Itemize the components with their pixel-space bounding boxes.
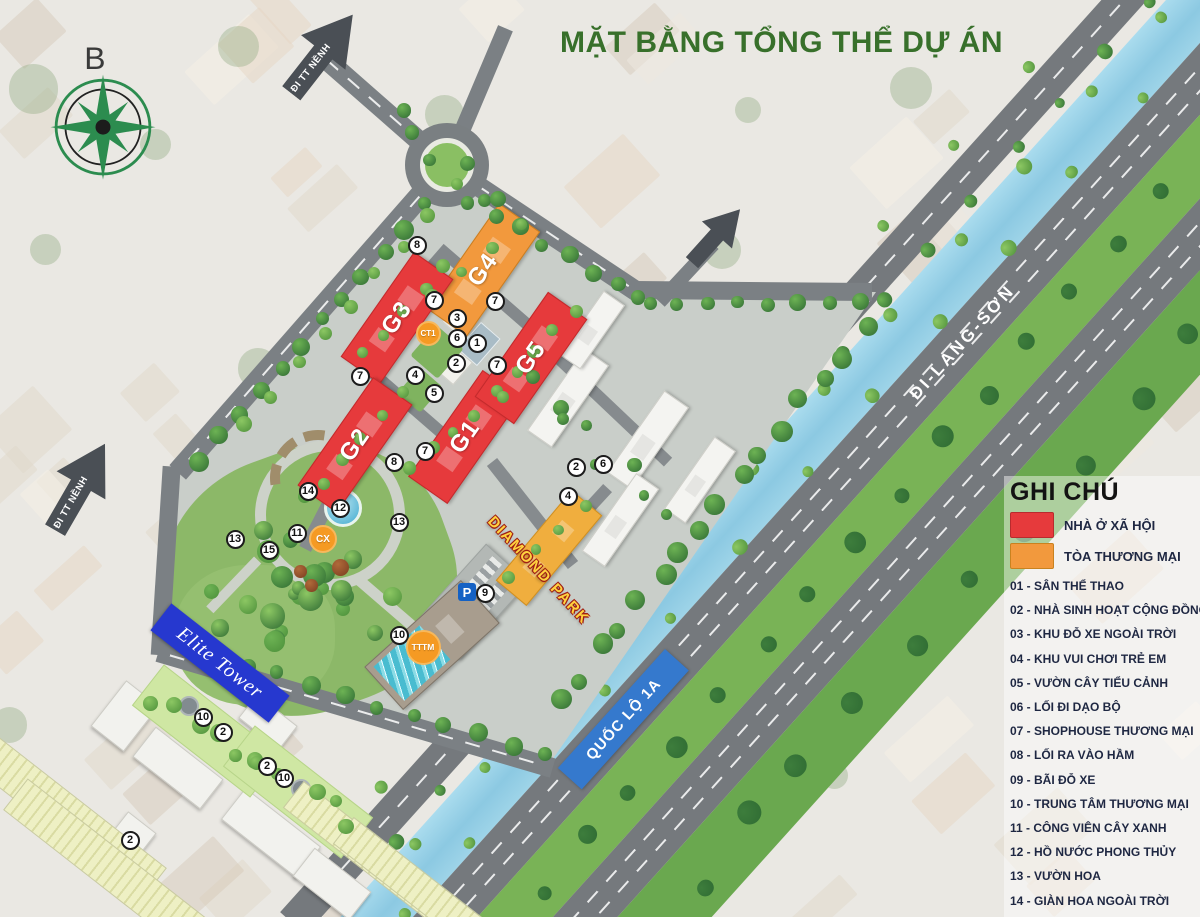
map-marker-7: 7: [416, 442, 435, 461]
legend-item-11: 11 - CÔNG VIÊN CÂY XANH: [1010, 816, 1200, 840]
tree: [581, 420, 592, 431]
map-marker-14: 14: [299, 482, 318, 501]
tree: [397, 103, 411, 117]
page-title: MẶT BẰNG TỔNG THỂ DỰ ÁN: [560, 26, 1003, 60]
aerial-tree-cluster: [0, 707, 27, 743]
legend-swatch-row: TÒA THƯƠNG MẠI: [1010, 543, 1200, 569]
tree: [644, 297, 657, 310]
tree: [585, 265, 602, 282]
tree: [294, 565, 306, 577]
tree: [189, 452, 209, 472]
tree: [817, 370, 834, 387]
tree: [309, 784, 326, 801]
tree: [832, 349, 852, 369]
map-marker-1: 1: [468, 334, 487, 353]
tree: [331, 580, 352, 601]
tree: [502, 571, 515, 584]
tree: [538, 747, 552, 761]
aerial-house: [563, 133, 660, 228]
map-marker-7: 7: [486, 292, 505, 311]
map-marker-4: 4: [559, 487, 578, 506]
tree: [318, 478, 330, 490]
roof-detail: [603, 514, 626, 539]
legend-item-12: 12 - HỒ NƯỚC PHONG THỦY: [1010, 840, 1200, 864]
tree: [338, 819, 354, 835]
tree: [403, 461, 417, 475]
aerial-house: [120, 363, 180, 423]
orange-marker-cx: CX: [309, 525, 337, 553]
tree: [639, 490, 650, 501]
tree: [670, 298, 683, 311]
tree: [143, 696, 158, 711]
tree: [293, 356, 305, 368]
tree: [264, 391, 278, 405]
tree: [535, 239, 548, 252]
tree: [209, 426, 228, 445]
legend-item-07: 07 - SHOPHOUSE THƯƠNG MẠI: [1010, 719, 1200, 743]
tree: [436, 259, 450, 273]
legend-item-09: 09 - BÃI ĐỖ XE: [1010, 768, 1200, 792]
tree: [551, 689, 572, 710]
map-marker-10: 10: [194, 708, 213, 727]
tree: [1141, 0, 1158, 11]
legend-item-04: 04 - KHU VUI CHƠI TRẺ EM: [1010, 647, 1200, 671]
tree: [271, 566, 293, 588]
aerial-tree-cluster: [30, 234, 61, 265]
tree: [735, 465, 754, 484]
map-marker-2: 2: [447, 354, 466, 373]
tree: [945, 138, 960, 153]
commercial-swatch: [1010, 543, 1054, 569]
tree: [330, 795, 342, 807]
roof-detail: [435, 614, 465, 644]
legend-swatch-label: TÒA THƯƠNG MẠI: [1064, 549, 1181, 564]
map-marker-12: 12: [331, 499, 350, 518]
legend-item-14: 14 - GIÀN HOA NGOÀI TRỜI: [1010, 889, 1200, 913]
tree: [236, 416, 252, 432]
map-marker-5: 5: [425, 384, 444, 403]
tree: [239, 595, 257, 613]
map-marker-8: 8: [408, 236, 427, 255]
map-marker-3: 3: [448, 309, 467, 328]
map-marker-2: 2: [567, 458, 586, 477]
tree: [611, 277, 625, 291]
tree: [461, 196, 474, 209]
roof-detail: [685, 475, 707, 498]
tree: [731, 296, 744, 309]
tree: [370, 701, 384, 715]
tree: [625, 590, 645, 610]
aerial-house: [775, 875, 858, 917]
tree: [859, 317, 878, 336]
tree: [571, 674, 587, 690]
aerial-house: [33, 544, 103, 611]
parking-icon: P: [458, 583, 476, 601]
legend-item-08: 08 - LỐI RA VÀO HẦM: [1010, 743, 1200, 767]
map-marker-7: 7: [425, 291, 444, 310]
tree: [656, 564, 677, 585]
map-marker-10: 10: [275, 769, 294, 788]
map-marker-15: 15: [260, 541, 279, 560]
map-marker-10: 10: [390, 626, 409, 645]
tree: [305, 579, 318, 592]
tree: [254, 521, 273, 540]
legend-item-13: 13 - VƯỜN HOA: [1010, 864, 1200, 888]
map-marker-2: 2: [258, 757, 277, 776]
tree: [771, 421, 793, 443]
legend-items: 01 - SÂN THỂ THAO02 - NHÀ SINH HOẠT CỘNG…: [1010, 574, 1200, 917]
tree: [561, 246, 579, 264]
orange-marker-tttm: TTTM: [406, 630, 441, 665]
map-marker-7: 7: [351, 367, 370, 386]
tree: [332, 559, 349, 576]
map-marker-2: 2: [214, 723, 233, 742]
legend-item-06: 06 - LỐI ĐI DẠO BỘ: [1010, 695, 1200, 719]
map-marker-13: 13: [226, 530, 245, 549]
map-marker-13: 13: [390, 513, 409, 532]
tree: [667, 542, 687, 562]
map-marker-6: 6: [594, 455, 613, 474]
tree: [704, 494, 725, 515]
tree: [701, 297, 715, 311]
legend-item-02: 02 - NHÀ SINH HOẠT CỘNG ĐỒNG: [1010, 598, 1200, 622]
tree: [420, 208, 435, 223]
legend-heading: GHI CHÚ: [1010, 478, 1200, 507]
map-marker-11: 11: [288, 524, 307, 543]
aerial-house: [0, 611, 44, 676]
social-housing-swatch: [1010, 512, 1054, 538]
tree: [516, 219, 526, 229]
tree: [423, 154, 436, 167]
tree: [570, 305, 583, 318]
tree: [405, 125, 420, 140]
tree: [336, 686, 354, 704]
tree: [748, 447, 766, 465]
legend-item-10: 10 - TRUNG TÂM THƯƠNG MẠI: [1010, 792, 1200, 816]
compass-rose: B: [40, 38, 166, 188]
tree: [352, 269, 368, 285]
legend-item-01: 01 - SÂN THỂ THAO: [1010, 574, 1200, 598]
legend-item-05: 05 - VƯỜN CÂY TIỂU CẢNH: [1010, 671, 1200, 695]
tree: [229, 749, 241, 761]
site-plan-canvas: ĐI-LẠNG-SƠN QUỐC LỘ 1A 87736127745782641…: [0, 0, 1200, 917]
tree: [553, 525, 563, 535]
tree: [276, 361, 291, 376]
legend: GHI CHÚ NHÀ Ở XÃ HỘI TÒA THƯƠNG MẠI 01 -…: [1004, 476, 1200, 917]
aerial-tree-cluster: [735, 97, 761, 123]
legend-swatch-row: NHÀ Ở XÃ HỘI: [1010, 512, 1200, 538]
map-marker-9: 9: [476, 584, 495, 603]
north-label: B: [84, 40, 105, 76]
map-marker-8: 8: [385, 453, 404, 472]
tree: [344, 300, 358, 314]
legend-item-15: 15 - ĐƯỜNG DẠO BỘ CÔNG VIÊN: [1010, 913, 1200, 917]
map-marker-2: 2: [121, 831, 140, 850]
legend-swatch-label: NHÀ Ở XÃ HỘI: [1064, 518, 1155, 533]
tree: [505, 737, 523, 755]
tree: [211, 619, 228, 636]
tree: [627, 458, 641, 472]
tree: [292, 338, 310, 356]
tree: [435, 717, 451, 733]
aerial-house: [458, 0, 524, 42]
roof-detail: [630, 434, 655, 460]
tree: [368, 267, 380, 279]
orange-marker-ct1: CT1: [416, 321, 441, 346]
tree: [490, 191, 506, 207]
tree: [823, 296, 837, 310]
map-marker-6: 6: [448, 329, 467, 348]
legend-item-03: 03 - KHU ĐỖ XE NGOÀI TRỜI: [1010, 622, 1200, 646]
tree: [875, 218, 891, 234]
map-marker-4: 4: [406, 366, 425, 385]
tree: [260, 603, 286, 629]
tree: [264, 631, 285, 652]
tree: [367, 625, 383, 641]
tree: [394, 220, 414, 240]
